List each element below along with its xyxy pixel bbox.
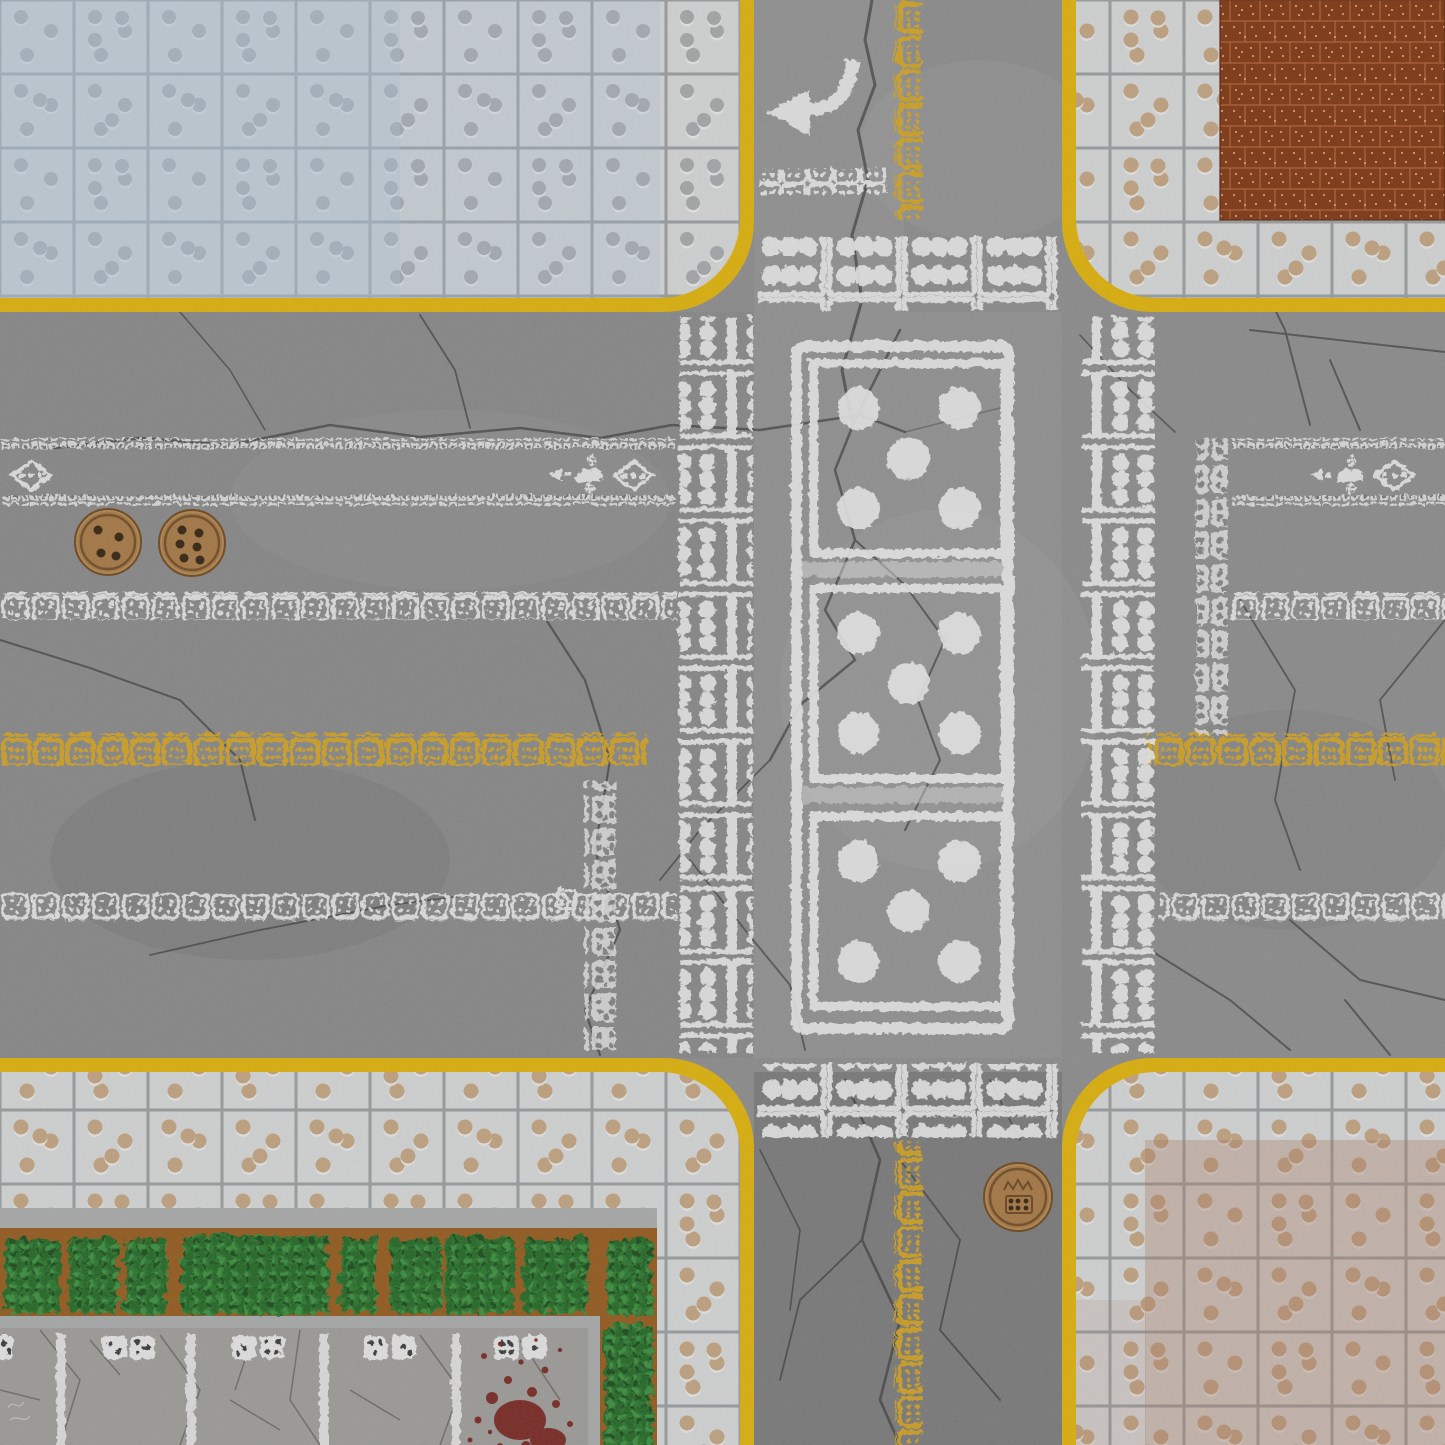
mat-canvas xyxy=(0,0,1445,1445)
grain-texture-light xyxy=(0,0,1445,1445)
game-mat: Domino Crossroads Game Mat xyxy=(0,0,1445,1445)
